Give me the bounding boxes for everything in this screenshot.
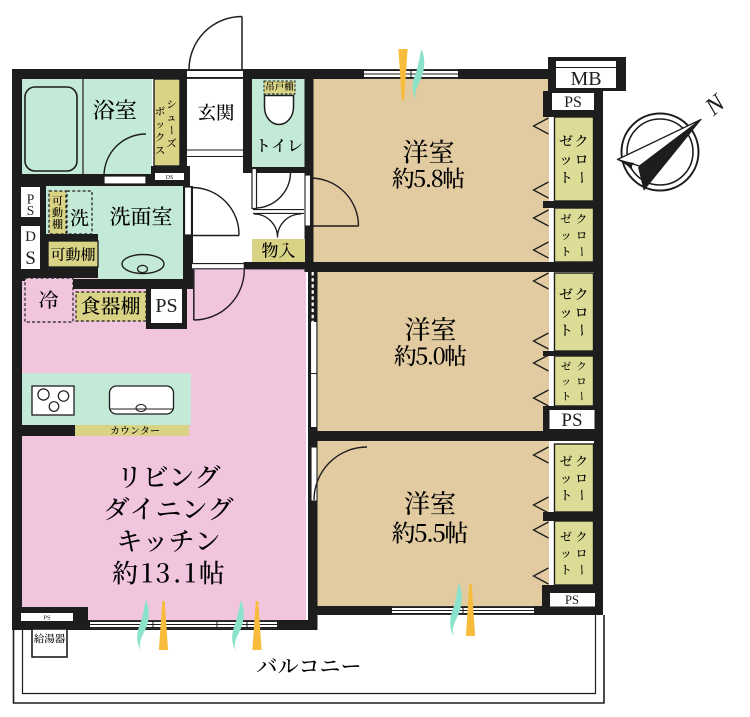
svg-text:S: S <box>27 203 35 218</box>
svg-text:PS: PS <box>564 94 582 111</box>
svg-text:S: S <box>25 248 36 269</box>
svg-text:PS: PS <box>561 410 582 431</box>
svg-text:PS: PS <box>565 593 579 607</box>
svg-text:PS: PS <box>155 295 177 317</box>
svg-text:PS: PS <box>43 615 51 622</box>
svg-text:D: D <box>25 229 36 245</box>
svg-text:MB: MB <box>570 68 601 90</box>
svg-text:DS: DS <box>166 175 174 181</box>
